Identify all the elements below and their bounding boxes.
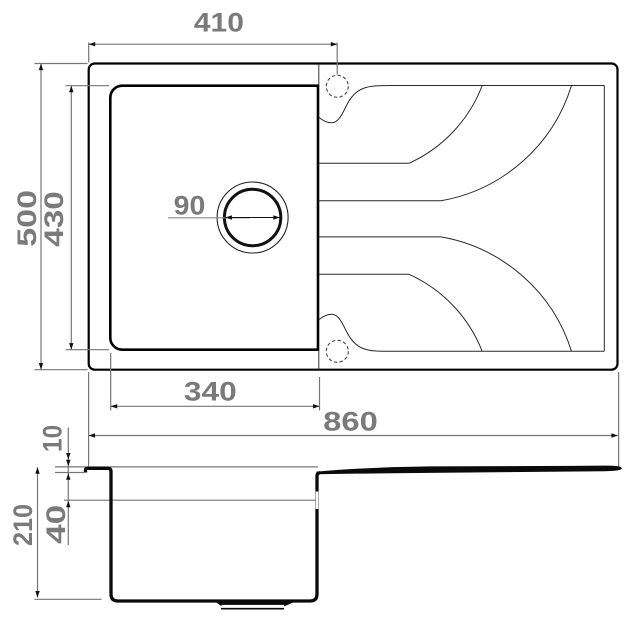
svg-text:340: 340 — [184, 377, 237, 407]
svg-text:90: 90 — [174, 191, 206, 221]
svg-text:430: 430 — [39, 191, 69, 247]
svg-text:210: 210 — [8, 504, 38, 546]
svg-text:10: 10 — [37, 425, 67, 452]
svg-text:500: 500 — [12, 190, 42, 247]
svg-text:40: 40 — [41, 505, 71, 544]
svg-text:410: 410 — [194, 8, 244, 38]
svg-text:860: 860 — [323, 407, 378, 437]
